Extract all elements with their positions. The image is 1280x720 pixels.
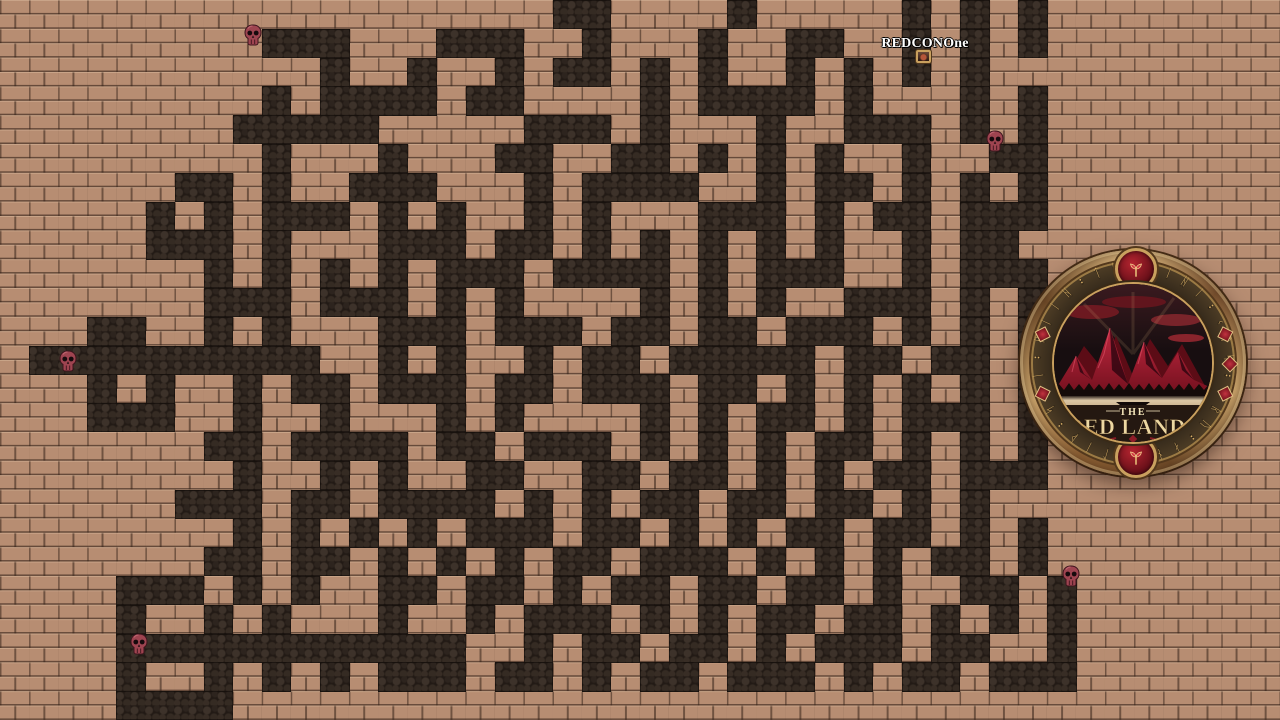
maze-corridor bbox=[524, 605, 612, 634]
maze-corridor bbox=[611, 144, 670, 173]
maze-corridor bbox=[204, 259, 234, 288]
maze-corridor bbox=[844, 605, 903, 634]
maze-corridor bbox=[524, 490, 554, 519]
maze-corridor bbox=[116, 576, 204, 605]
maze-corridor bbox=[262, 173, 292, 202]
maze-corridor bbox=[320, 662, 350, 691]
maze-corridor bbox=[698, 317, 757, 346]
maze-corridor bbox=[233, 403, 263, 432]
maze-corridor bbox=[582, 230, 612, 259]
maze-corridor bbox=[931, 634, 990, 663]
maze-corridor bbox=[378, 576, 437, 605]
maze-corridor bbox=[931, 346, 990, 375]
maze-corridor bbox=[756, 144, 786, 173]
maze-corridor bbox=[815, 432, 874, 461]
maze-corridor bbox=[960, 230, 1019, 259]
maze-corridor bbox=[553, 259, 670, 288]
game-map-redlands: REDCONOne ᚺᛁᛁᚺᛁ᛬ᚲᛏᛋ᛬ᛟᚱᚢ᛬ᛅᚾᛒ᛬ᛚᛁᚦ᛬ᛋᛏᛁ᛬ᚺᛁᛁᚺ… bbox=[0, 0, 1280, 720]
maze-corridor bbox=[640, 490, 699, 519]
maze-corridor bbox=[524, 432, 612, 461]
maze-corridor bbox=[407, 518, 437, 547]
maze-corridor bbox=[87, 374, 117, 403]
maze-corridor bbox=[640, 605, 670, 634]
skull-marker[interactable] bbox=[58, 350, 78, 372]
skull-marker[interactable] bbox=[243, 24, 263, 46]
maze-corridor bbox=[873, 576, 903, 605]
maze-corridor bbox=[931, 547, 990, 576]
maze-corridor bbox=[902, 317, 932, 346]
maze-corridor bbox=[87, 403, 175, 432]
maze-corridor bbox=[756, 288, 786, 317]
maze-corridor bbox=[902, 490, 932, 519]
maze-corridor bbox=[320, 403, 350, 432]
maze-corridor bbox=[756, 634, 786, 663]
maze-corridor bbox=[378, 259, 408, 288]
maze-corridor bbox=[815, 547, 845, 576]
rune-glyph: ᛬ bbox=[1030, 350, 1045, 365]
maze-corridor bbox=[204, 317, 234, 346]
maze-corridor bbox=[873, 547, 903, 576]
maze-corridor bbox=[320, 86, 437, 115]
maze-corridor bbox=[291, 374, 350, 403]
maze-corridor bbox=[87, 317, 146, 346]
maze-corridor bbox=[756, 403, 815, 432]
maze-corridor bbox=[204, 288, 292, 317]
maze-corridor bbox=[378, 490, 495, 519]
maze-corridor bbox=[727, 490, 786, 519]
maze-corridor bbox=[844, 403, 874, 432]
maze-corridor bbox=[756, 259, 844, 288]
maze-corridor bbox=[960, 86, 990, 115]
maze-corridor bbox=[960, 461, 1048, 490]
maze-corridor bbox=[233, 374, 263, 403]
maze-corridor bbox=[902, 403, 990, 432]
maze-corridor bbox=[204, 662, 234, 691]
maze-corridor bbox=[1018, 518, 1048, 547]
red-lands-emblem: ᚺᛁᛁᚺᛁ᛬ᚲᛏᛋ᛬ᛟᚱᚢ᛬ᛅᚾᛒ᛬ᛚᛁᚦ᛬ᛋᛏᛁ᛬ᚺᛁᛁᚺ᛬ᛏᛋ bbox=[1020, 250, 1246, 476]
maze-corridor bbox=[640, 662, 699, 691]
maze-corridor bbox=[698, 29, 728, 58]
maze-corridor bbox=[320, 259, 350, 288]
maze-corridor bbox=[233, 576, 263, 605]
maze-corridor bbox=[495, 230, 554, 259]
maze-corridor bbox=[524, 115, 612, 144]
maze-corridor bbox=[378, 461, 408, 490]
maze-corridor bbox=[495, 662, 554, 691]
maze-corridor bbox=[495, 317, 583, 346]
maze-corridor bbox=[669, 461, 728, 490]
maze-corridor bbox=[756, 547, 786, 576]
maze-corridor bbox=[640, 58, 670, 87]
maze-corridor bbox=[378, 346, 408, 375]
maze-corridor bbox=[1018, 115, 1048, 144]
maze-corridor bbox=[698, 86, 815, 115]
maze-corridor bbox=[989, 662, 1077, 691]
maze-corridor bbox=[669, 518, 699, 547]
maze-corridor bbox=[582, 662, 612, 691]
maze-corridor bbox=[553, 576, 583, 605]
maze-corridor bbox=[466, 461, 525, 490]
maze-corridor bbox=[204, 547, 263, 576]
maze-corridor bbox=[495, 288, 525, 317]
maze-corridor bbox=[640, 230, 670, 259]
maze-corridor bbox=[436, 403, 466, 432]
maze-corridor bbox=[233, 518, 263, 547]
maze-corridor bbox=[262, 230, 292, 259]
maze-corridor bbox=[233, 461, 263, 490]
maze-corridor bbox=[844, 374, 874, 403]
maze-corridor bbox=[873, 461, 932, 490]
maze-corridor bbox=[466, 86, 525, 115]
emblem-bottom-gem bbox=[1115, 436, 1157, 478]
maze-corridor bbox=[116, 634, 466, 663]
skull-marker[interactable] bbox=[129, 633, 149, 655]
maze-corridor bbox=[204, 432, 263, 461]
maze-corridor bbox=[611, 317, 670, 346]
maze-corridor bbox=[582, 518, 641, 547]
maze-corridor bbox=[524, 202, 554, 231]
maze-corridor bbox=[698, 230, 728, 259]
maze-corridor bbox=[1018, 432, 1048, 461]
maze-corridor bbox=[407, 58, 437, 87]
maze-corridor bbox=[640, 288, 670, 317]
maze-corridor bbox=[698, 288, 728, 317]
maze-corridor bbox=[786, 29, 845, 58]
maze-corridor bbox=[960, 576, 1019, 605]
maze-corridor bbox=[902, 259, 932, 288]
maze-corridor bbox=[960, 518, 990, 547]
maze-corridor bbox=[960, 173, 990, 202]
maze-corridor bbox=[698, 58, 728, 87]
maze-corridor bbox=[262, 259, 292, 288]
maze-corridor bbox=[1018, 547, 1048, 576]
maze-corridor bbox=[553, 58, 612, 87]
rune-glyph: ᛏ bbox=[1088, 264, 1106, 282]
maze-corridor bbox=[1018, 29, 1048, 58]
maze-corridor bbox=[582, 490, 612, 519]
maze-corridor bbox=[960, 288, 990, 317]
maze-corridor bbox=[116, 662, 146, 691]
maze-corridor bbox=[815, 490, 874, 519]
maze-corridor bbox=[378, 202, 408, 231]
maze-corridor bbox=[436, 346, 466, 375]
maze-corridor bbox=[844, 58, 874, 87]
emblem-scene: THE RED LANDS bbox=[1054, 284, 1212, 442]
maze-corridor bbox=[786, 518, 845, 547]
maze-corridor bbox=[204, 605, 234, 634]
maze-corridor bbox=[262, 317, 292, 346]
maze-corridor bbox=[902, 173, 932, 202]
maze-corridor bbox=[902, 662, 961, 691]
maze-corridor bbox=[175, 173, 234, 202]
maze-corridor bbox=[727, 662, 815, 691]
sprout-icon bbox=[1125, 258, 1147, 280]
maze-corridor bbox=[233, 115, 379, 144]
maze-corridor bbox=[902, 374, 932, 403]
rune-glyph: ᛁ bbox=[1030, 368, 1046, 384]
maze-corridor bbox=[436, 29, 524, 58]
maze-corridor bbox=[378, 662, 466, 691]
maze-corridor bbox=[844, 662, 874, 691]
maze-corridor bbox=[1047, 605, 1077, 634]
maze-corridor bbox=[582, 634, 641, 663]
maze-corridor bbox=[960, 490, 990, 519]
maze-corridor bbox=[640, 432, 670, 461]
maze-corridor bbox=[815, 202, 845, 231]
maze-corridor bbox=[960, 317, 990, 346]
maze-corridor bbox=[786, 317, 874, 346]
maze-corridor bbox=[873, 202, 932, 231]
maze-corridor bbox=[146, 374, 176, 403]
maze-corridor bbox=[320, 58, 350, 87]
maze-corridor bbox=[960, 202, 1048, 231]
maze-corridor bbox=[466, 605, 496, 634]
maze-corridor bbox=[262, 29, 350, 58]
maze-corridor bbox=[524, 346, 554, 375]
maze-corridor bbox=[815, 634, 903, 663]
maze-corridor bbox=[495, 547, 525, 576]
maze-corridor bbox=[116, 605, 146, 634]
maze-corridor bbox=[844, 346, 903, 375]
maze-corridor bbox=[756, 173, 786, 202]
maze-corridor bbox=[815, 461, 845, 490]
maze-corridor bbox=[1047, 634, 1077, 663]
maze-corridor bbox=[291, 518, 321, 547]
maze-corridor bbox=[1018, 86, 1048, 115]
maze-corridor bbox=[436, 547, 466, 576]
maze-corridor bbox=[262, 144, 292, 173]
maze-corridor bbox=[902, 432, 932, 461]
maze-corridor bbox=[756, 230, 786, 259]
maze-corridor bbox=[582, 202, 612, 231]
maze-corridor bbox=[495, 374, 554, 403]
maze-corridor bbox=[989, 605, 1019, 634]
maze-corridor bbox=[698, 144, 728, 173]
maze-corridor bbox=[495, 58, 525, 87]
maze-corridor bbox=[902, 144, 932, 173]
maze-corridor bbox=[727, 0, 757, 29]
maze-corridor bbox=[146, 230, 234, 259]
maze-corridor bbox=[698, 432, 728, 461]
maze-corridor bbox=[495, 403, 525, 432]
red-mountains-graphic: THE RED LANDS bbox=[1054, 284, 1212, 442]
maze-corridor bbox=[378, 374, 466, 403]
maze-corridor bbox=[262, 86, 292, 115]
maze-corridor bbox=[698, 259, 728, 288]
maze-corridor bbox=[262, 202, 350, 231]
maze-corridor bbox=[669, 346, 815, 375]
maze-corridor bbox=[902, 0, 932, 29]
maze-corridor bbox=[698, 403, 728, 432]
maze-corridor bbox=[291, 490, 350, 519]
maze-corridor bbox=[931, 605, 961, 634]
maze-corridor bbox=[640, 86, 670, 115]
maze-corridor bbox=[582, 461, 641, 490]
maze-corridor bbox=[756, 432, 786, 461]
maze-corridor bbox=[378, 230, 466, 259]
maze-corridor bbox=[436, 432, 495, 461]
maze-corridor bbox=[844, 86, 874, 115]
maze-corridor bbox=[378, 605, 408, 634]
maze-corridor bbox=[640, 547, 728, 576]
maze-corridor bbox=[320, 288, 408, 317]
maze-corridor bbox=[756, 605, 815, 634]
maze-corridor bbox=[116, 691, 233, 720]
maze-corridor bbox=[466, 576, 525, 605]
maze-corridor bbox=[524, 173, 554, 202]
maze-corridor bbox=[291, 432, 408, 461]
maze-corridor bbox=[815, 144, 845, 173]
maze-corridor bbox=[960, 259, 1048, 288]
maze-corridor bbox=[320, 461, 350, 490]
maze-corridor bbox=[1018, 173, 1048, 202]
maze-corridor bbox=[640, 403, 670, 432]
maze-corridor bbox=[582, 29, 612, 58]
maze-corridor bbox=[146, 202, 176, 231]
skull-marker[interactable] bbox=[985, 130, 1005, 152]
maze-corridor bbox=[960, 58, 990, 87]
maze-corridor bbox=[815, 173, 874, 202]
maze-corridor bbox=[960, 0, 990, 29]
maze-corridor bbox=[698, 202, 786, 231]
maze-corridor bbox=[844, 115, 932, 144]
maze-corridor bbox=[902, 230, 932, 259]
maze-corridor bbox=[495, 144, 554, 173]
maze-corridor bbox=[786, 374, 816, 403]
maze-corridor bbox=[436, 202, 466, 231]
maze-corridor bbox=[786, 58, 816, 87]
maze-corridor bbox=[436, 259, 524, 288]
maze-corridor bbox=[756, 461, 786, 490]
maze-corridor bbox=[960, 374, 990, 403]
maze-corridor bbox=[669, 634, 728, 663]
maze-corridor bbox=[582, 374, 670, 403]
maze-corridor bbox=[1018, 0, 1048, 29]
maze-corridor bbox=[640, 115, 670, 144]
maze-corridor bbox=[262, 605, 292, 634]
maze-corridor bbox=[524, 634, 554, 663]
player-sprite[interactable] bbox=[916, 50, 931, 63]
maze-corridor bbox=[349, 518, 379, 547]
maze-corridor bbox=[436, 288, 466, 317]
maze-corridor bbox=[611, 576, 670, 605]
maze-corridor bbox=[291, 576, 321, 605]
maze-corridor bbox=[873, 518, 932, 547]
maze-corridor bbox=[960, 432, 990, 461]
maze-corridor bbox=[466, 518, 554, 547]
maze-corridor bbox=[698, 576, 757, 605]
maze-corridor bbox=[727, 518, 757, 547]
maze-corridor bbox=[378, 317, 466, 346]
maze-corridor bbox=[582, 173, 699, 202]
maze-corridor bbox=[553, 0, 612, 29]
maze-corridor bbox=[582, 346, 641, 375]
maze-corridor bbox=[698, 605, 728, 634]
maze-corridor bbox=[204, 202, 234, 231]
maze-corridor bbox=[698, 374, 757, 403]
maze-corridor bbox=[262, 662, 292, 691]
maze-corridor bbox=[786, 576, 845, 605]
maze-corridor bbox=[349, 173, 437, 202]
maze-corridor bbox=[553, 547, 612, 576]
maze-corridor bbox=[815, 230, 845, 259]
sprout-icon bbox=[1125, 446, 1147, 468]
maze-corridor bbox=[378, 144, 408, 173]
maze-corridor bbox=[175, 490, 263, 519]
maze-corridor bbox=[756, 115, 786, 144]
maze-corridor bbox=[844, 288, 932, 317]
maze-corridor bbox=[291, 547, 350, 576]
skull-marker[interactable] bbox=[1061, 565, 1081, 587]
maze-corridor bbox=[378, 547, 408, 576]
